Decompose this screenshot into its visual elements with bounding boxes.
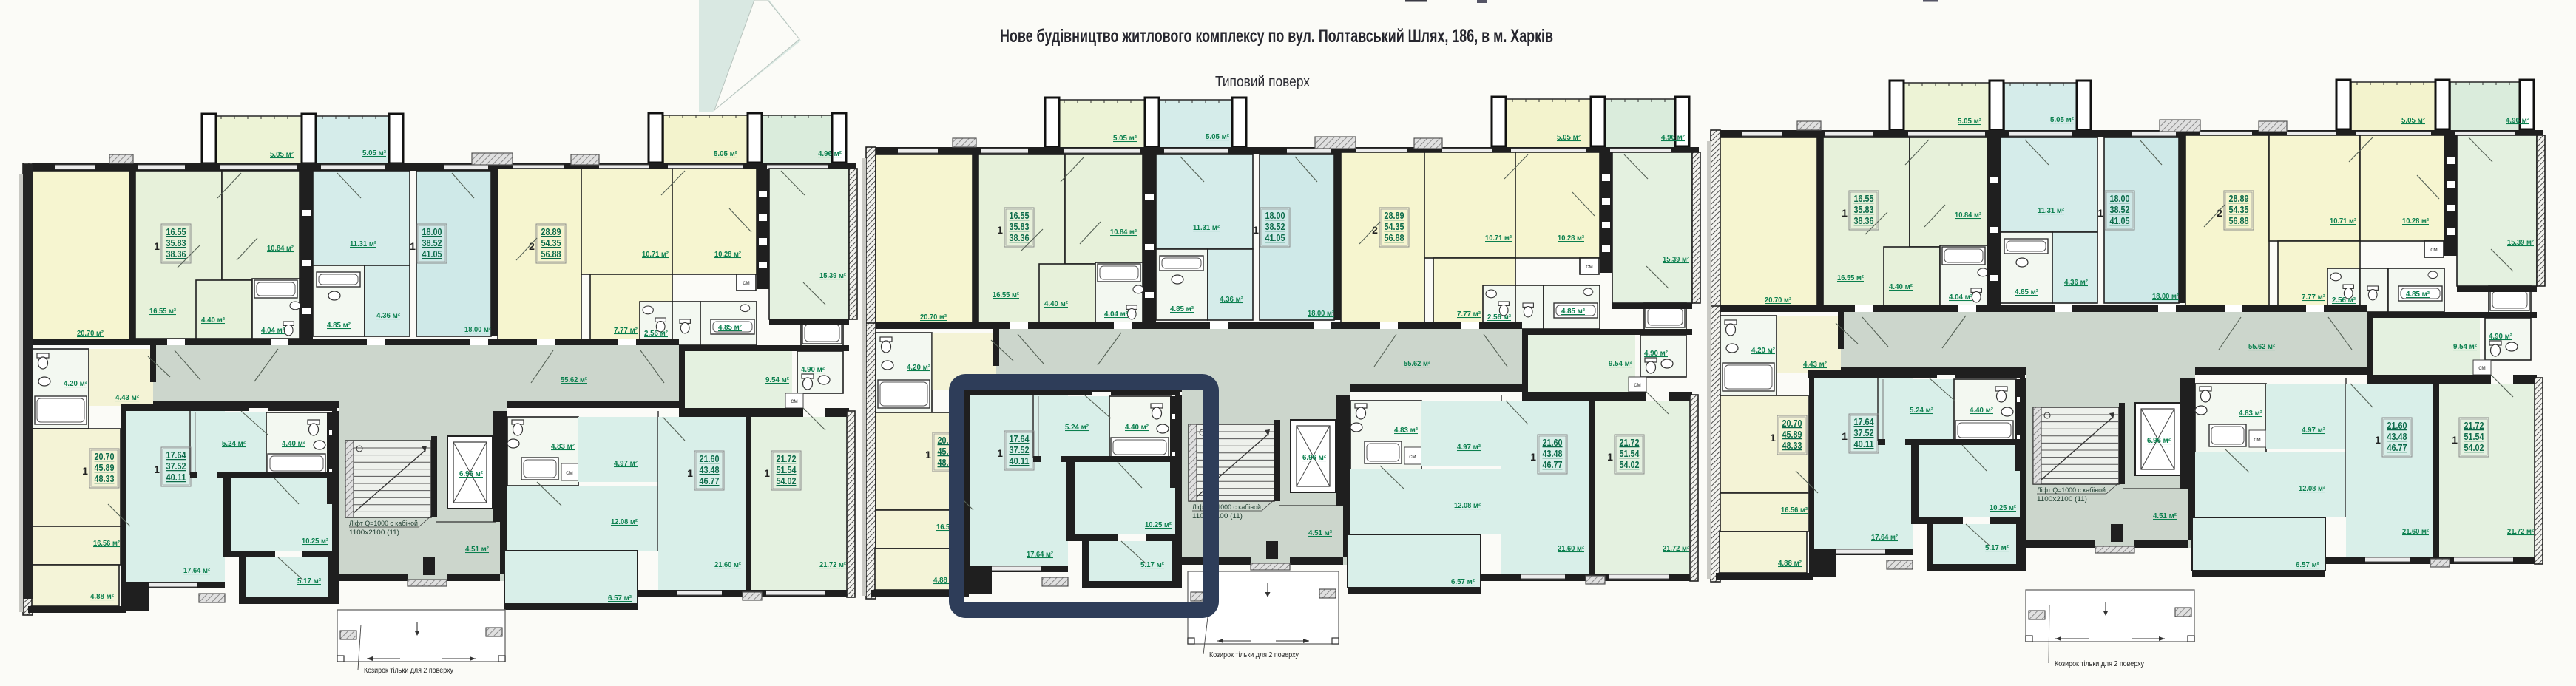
svg-text:Козирок тільки для 2 поверху: Козирок тільки для 2 поверху [2055, 659, 2145, 668]
svg-text:Козирок тільки для 2 поверху: Козирок тільки для 2 поверху [1209, 651, 1299, 659]
svg-text:Козирок тільки для 2 поверху: Козирок тільки для 2 поверху [364, 666, 454, 675]
svg-text:Нове будівництво житлового ком: Нове будівництво житлового комплексу по … [1000, 26, 1553, 47]
svg-text:Типовий поверх: Типовий поверх [1215, 74, 1310, 90]
